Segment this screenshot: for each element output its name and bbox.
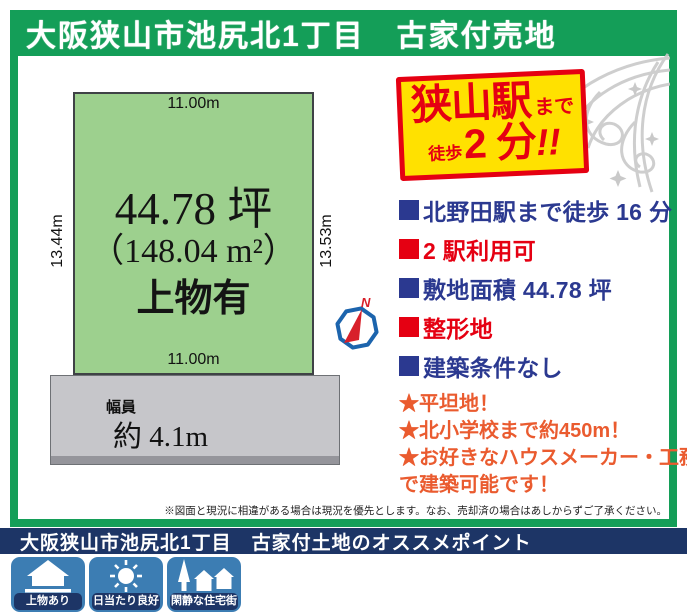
feature-tile-label: 日当たり良好 xyxy=(92,593,160,610)
flyer-page: 大阪狭山市池尻北1丁目 古家付売地 11.00m 11.00m 13.44m 1… xyxy=(0,0,687,614)
bullet-item: 敷地面積 44.78 坪 xyxy=(399,268,671,307)
bullet-text: 北野田駅まで徒歩 16 分 xyxy=(423,193,672,227)
plot-left-dimension: 13.44m xyxy=(49,209,67,273)
page-title: 大阪狭山市池尻北1丁目 古家付売地 xyxy=(10,11,557,55)
road-width-value: 約 4.1m xyxy=(113,413,208,455)
feature-tile-sunlight: 日当たり良好 xyxy=(89,557,163,612)
badge-made: まで xyxy=(531,96,575,121)
badge-toho: 徒歩 xyxy=(428,144,465,167)
feature-tile-label: 閑静な住宅街 xyxy=(170,593,238,610)
star-line: ★お好きなハウスメーカー・工務店 xyxy=(399,445,679,472)
area-tsubo: 44.78 坪 xyxy=(73,185,314,233)
feature-tile-building: 上物あり xyxy=(11,557,85,612)
plot-bottom-dimension: 11.00m xyxy=(73,351,314,369)
plot-center-text: 44.78 坪 （148.04 m²） 上物有 xyxy=(73,185,314,321)
plot-top-dimension: 11.00m xyxy=(73,95,314,113)
feature-tile-quiet-area: 閑静な住宅街 xyxy=(167,557,241,612)
plot-right-dimension: 13.53m xyxy=(318,209,336,273)
bullet-square xyxy=(399,239,419,259)
road-area: 幅員 約 4.1m xyxy=(50,375,340,465)
bullet-item: 2 駅利用可 xyxy=(399,229,671,268)
badge-exclamation: !! xyxy=(535,123,561,162)
compass-icon: N xyxy=(331,296,383,354)
plot-note: 上物有 xyxy=(73,277,314,321)
station-badge: 狭山駅 まで 徒歩 2 分 !! xyxy=(396,69,589,181)
bullet-text: 敷地面積 44.78 坪 xyxy=(423,271,612,305)
feature-bullet-list: 北野田駅まで徒歩 16 分 2 駅利用可 敷地面積 44.78 坪 整形地 建築… xyxy=(399,190,671,385)
house-icon xyxy=(11,558,85,594)
bullet-item: 整形地 xyxy=(399,307,671,346)
bullet-item: 北野田駅まで徒歩 16 分 xyxy=(399,190,671,229)
area-sqm: （148.04 m²） xyxy=(73,233,314,271)
bullet-square xyxy=(399,200,419,220)
quiet-street-icon xyxy=(167,558,241,594)
bullet-square xyxy=(399,278,419,298)
star-line: で建築可能です！ xyxy=(399,472,679,499)
bullet-text: 建築条件なし xyxy=(423,349,563,383)
sun-icon xyxy=(89,558,163,594)
feature-icon-tiles: 上物あり 日当たり良好 xyxy=(11,557,241,612)
road-edge-strip xyxy=(51,456,339,464)
bullet-text: 2 駅利用可 xyxy=(423,232,536,266)
compass-north-label: N xyxy=(361,296,371,310)
star-point-list: ★平坦地！ ★北小学校まで約450m！ ★お好きなハウスメーカー・工務店 で建築… xyxy=(399,391,679,499)
bullet-square xyxy=(399,317,419,337)
bullet-square xyxy=(399,356,419,376)
star-line: ★平坦地！ xyxy=(399,391,679,418)
feature-tile-label: 上物あり xyxy=(14,593,82,610)
badge-minutes: 2 分 xyxy=(463,121,537,165)
bullet-item: 建築条件なし xyxy=(399,346,671,385)
footer-title: 大阪狭山市池尻北1丁目 古家付土地のオススメポイント xyxy=(0,528,532,555)
header-bar: 大阪狭山市池尻北1丁目 古家付売地 xyxy=(10,10,677,56)
footer-bar: 大阪狭山市池尻北1丁目 古家付土地のオススメポイント xyxy=(0,528,687,554)
star-line: ★北小学校まで約450m！ xyxy=(399,418,679,445)
disclaimer-text: ※図面と現況に相違がある場合は現況を優先とします。なお、売却済の場合はあしからず… xyxy=(164,503,667,518)
bullet-text: 整形地 xyxy=(423,310,493,344)
